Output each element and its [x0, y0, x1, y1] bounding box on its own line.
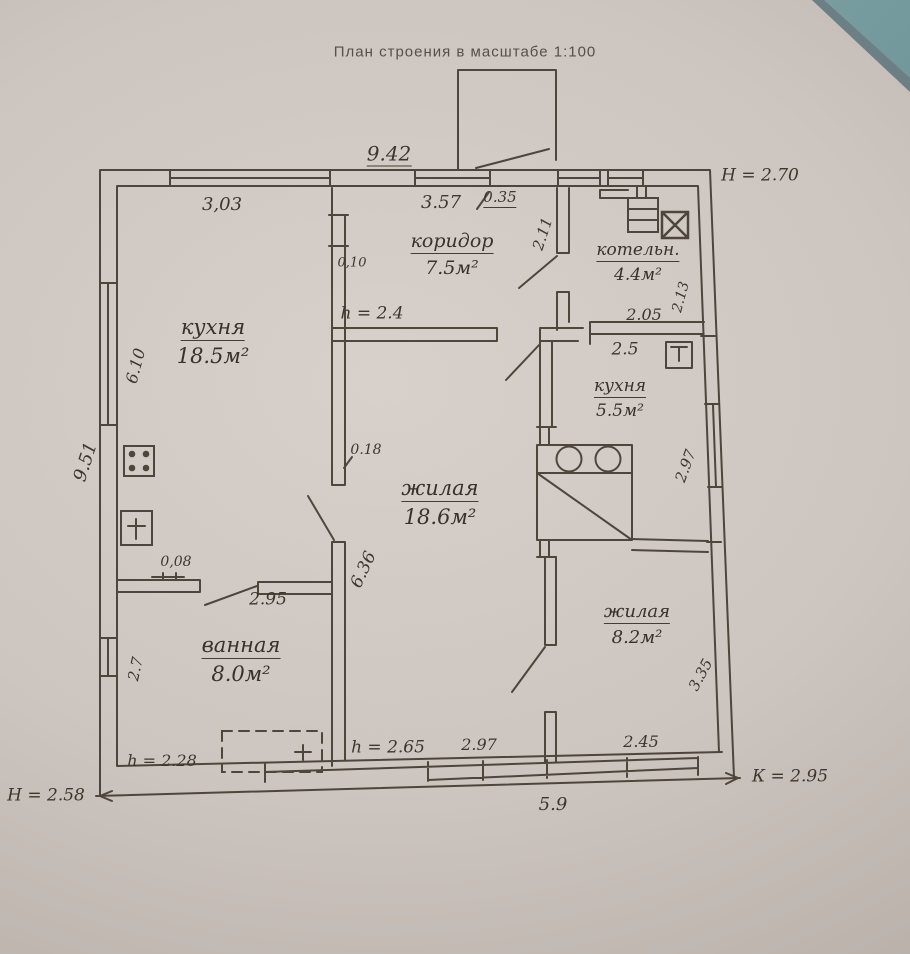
room-label-living-big: жилая 18.6м² [401, 478, 478, 528]
dim-bath-door: 2.95 [249, 592, 287, 609]
dim-corridor-stub: 0,10 [338, 257, 367, 270]
room-label-living-small: жилая 8.2м² [604, 603, 670, 647]
dim-bath-stub: 0,08 [160, 555, 191, 569]
living-partition [512, 557, 556, 763]
room-label-bath: ванная 8.0м² [202, 635, 281, 685]
corridor-bottom-wall [332, 328, 583, 380]
height-corridor: h = 2.4 [340, 306, 403, 323]
sink-small-symbol [666, 342, 692, 368]
height-living: h = 2.65 [351, 740, 425, 757]
dim-wall-thickness: 0.18 [350, 443, 381, 457]
boiler-partition [519, 188, 569, 330]
kitchen-small-left-wall [537, 341, 556, 445]
height-bottom-right: К = 2.95 [752, 769, 828, 786]
bathroom-top-wall [117, 573, 332, 605]
living-small-top-wall [632, 539, 708, 552]
height-bottom-left: Н = 2.58 [7, 788, 85, 805]
dim-top-left-window: 3,03 [202, 196, 242, 214]
dim-bottom-mid: 2.97 [461, 737, 497, 753]
left-wall-windows [100, 283, 117, 676]
porch-door-swing [476, 149, 549, 168]
height-bath: h = 2.28 [127, 753, 197, 769]
height-top-right: Н = 2.70 [721, 168, 799, 185]
vent-x-symbol [662, 212, 688, 238]
room-label-kitchen-small: кухня 5.5м² [594, 378, 646, 420]
room-label-kitchen-big: кухня 18.5м² [177, 317, 250, 367]
boiler-bottom-wall [590, 322, 704, 344]
central-partition [308, 188, 352, 766]
gas-stove-symbol [124, 446, 154, 476]
top-wall-windows [170, 170, 643, 186]
room-label-corridor: коридор 7.5м² [411, 232, 494, 278]
dim-boiler-width: 2.05 [626, 307, 662, 323]
boiler-symbol [600, 186, 658, 232]
dim-top-total: 9.42 [367, 144, 412, 167]
sink-big-symbol [121, 511, 152, 545]
dim-top-right-window: 3.57 [421, 194, 461, 212]
dim-bottom-right-window: 2.45 [623, 734, 659, 750]
room-label-boiler: котельн. 4.4м² [596, 242, 679, 284]
dim-kitchen-small-top: 2.5 [611, 342, 638, 359]
porch-outline [458, 70, 556, 170]
bathtub-symbol [222, 731, 322, 772]
dim-bottom-total: 5.9 [539, 796, 568, 814]
masonry-stove-symbol [537, 445, 632, 557]
scanned-floor-plan-photo: План строения в масштабе 1:100 [0, 0, 910, 954]
dim-top-small: 0.35 [483, 190, 516, 208]
